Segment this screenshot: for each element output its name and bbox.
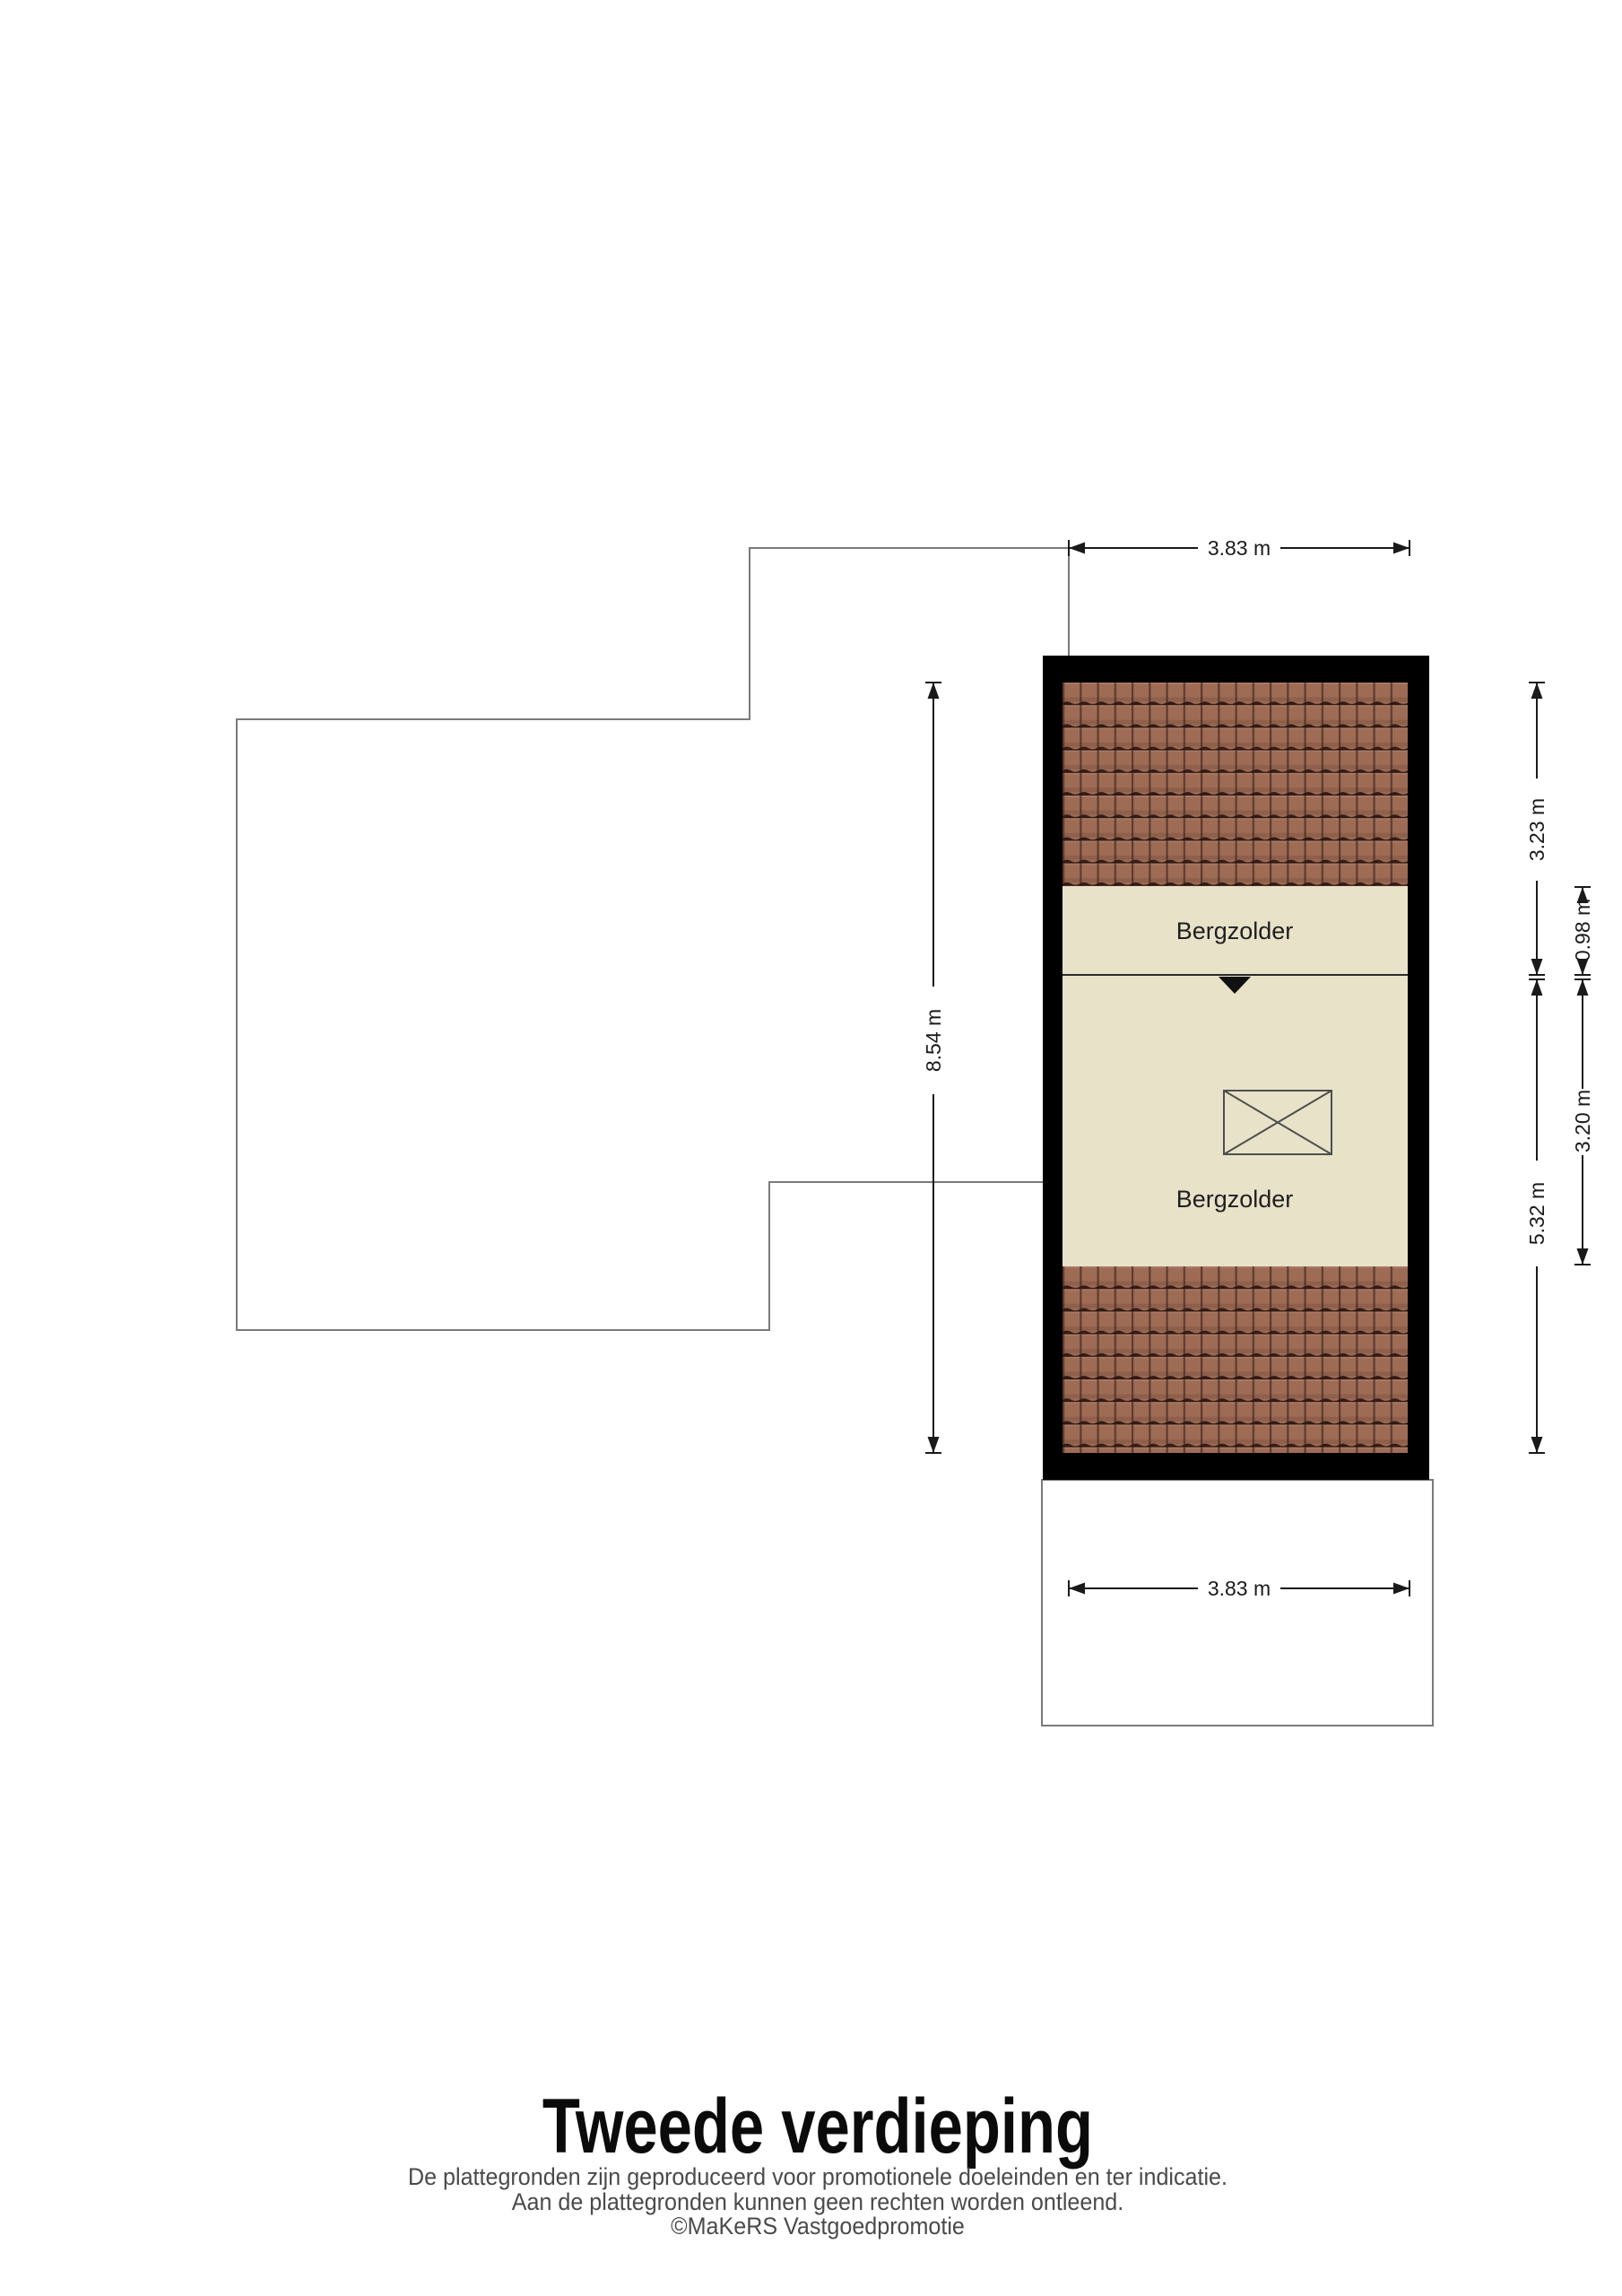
dimension-label-right-upper-room: 0.98 m	[1571, 899, 1594, 961]
roof-tiles-bottom	[1063, 1266, 1408, 1453]
dimension-label-top-width: 3.83 m	[1208, 536, 1271, 560]
dimension-left-height: 8.54 m	[922, 683, 945, 1453]
dimension-label-left-height: 8.54 m	[922, 1009, 945, 1072]
disclaimer-line-1: De plattegronden zijn geproduceerd voor …	[408, 2162, 1227, 2190]
dimension-right-lower-room: 3.20 m	[1571, 979, 1594, 1265]
dimension-top-width: 3.83 m	[1069, 536, 1409, 560]
dimension-right-upper-total: 3.23 m	[1525, 683, 1548, 975]
room-label-bergzolder-lower: Bergzolder	[1176, 1186, 1294, 1213]
room-label-bergzolder-upper: Bergzolder	[1176, 918, 1294, 944]
dormer-reference-box	[1042, 1480, 1433, 1726]
dimension-label-bottom-width: 3.83 m	[1208, 1577, 1271, 1600]
dimension-label-right-upper-total: 3.23 m	[1525, 798, 1548, 861]
credit-line: ©MaKeRS Vastgoedpromotie	[671, 2212, 965, 2239]
lower-floor-reference-outline	[237, 548, 1069, 1330]
dimension-right-lower-total: 5.32 m	[1525, 979, 1548, 1453]
floor-plan-svg: Bergzolder Bergzolder 3.83 m 3.83 m 8.54…	[0, 0, 1622, 2296]
roof-window-icon	[1224, 1091, 1331, 1154]
floorplan-page: Bergzolder Bergzolder 3.83 m 3.83 m 8.54…	[0, 0, 1622, 2296]
roof-tiles-top	[1063, 683, 1408, 886]
page-title: Tweede verdieping	[542, 2083, 1093, 2170]
dimension-label-right-lower-total: 5.32 m	[1525, 1182, 1548, 1245]
dimension-label-right-lower-room: 3.20 m	[1571, 1090, 1594, 1152]
dimension-right-upper-room: 0.98 m	[1571, 887, 1594, 975]
